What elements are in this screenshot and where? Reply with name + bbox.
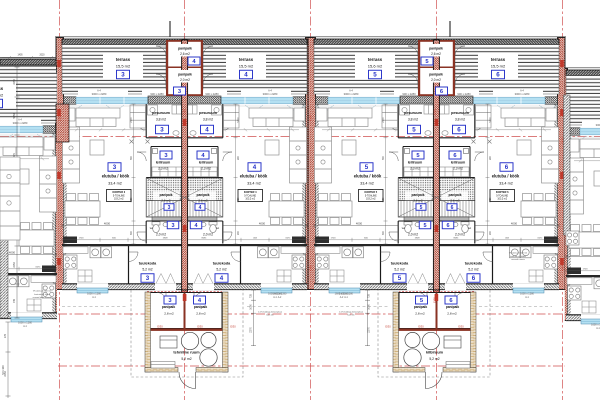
- svg-text:3,8 m2: 3,8 m2: [156, 118, 166, 122]
- svg-text:6: 6: [451, 205, 454, 211]
- svg-text:A-1: A-1: [596, 327, 600, 330]
- svg-text:1150: 1150: [131, 197, 133, 203]
- svg-text:2,3 m2: 2,3 m2: [201, 167, 211, 171]
- svg-text:1700: 1700: [79, 238, 85, 240]
- svg-text:3,8 m2: 3,8 m2: [408, 118, 418, 122]
- svg-text:5,2 m2: 5,2 m2: [429, 357, 439, 361]
- svg-text:VK abiruum 500 m2: VK abiruum 500 m2: [509, 252, 528, 255]
- svg-text:2770: 2770: [488, 117, 490, 123]
- svg-text:elutuba / köök: elutuba / köök: [492, 174, 520, 179]
- svg-text:KORTER 6: KORTER 6: [496, 191, 509, 194]
- svg-text:leiliruum: leiliruum: [451, 161, 466, 165]
- svg-text:3: 3: [168, 205, 171, 211]
- svg-text:1908: 1908: [201, 238, 207, 240]
- svg-text:EI30: EI30: [183, 297, 187, 303]
- svg-text:1908: 1908: [163, 238, 169, 240]
- svg-text:6: 6: [472, 275, 476, 282]
- svg-text:900 x 2280: 900 x 2280: [150, 92, 164, 96]
- svg-text:3000 x 2280: 3000 x 2280: [515, 92, 530, 96]
- svg-text:5,2 m2: 5,2 m2: [181, 357, 191, 361]
- svg-text:2250: 2250: [13, 262, 16, 268]
- svg-text:3: 3: [121, 72, 125, 79]
- svg-text:1600 x 1280: 1600 x 1280: [18, 322, 32, 325]
- svg-text:tuulekoda: tuulekoda: [139, 262, 157, 266]
- svg-text:EI30: EI30: [230, 325, 236, 329]
- svg-text:pesuruum: pesuruum: [152, 111, 171, 115]
- svg-text:elutuba / köök: elutuba / köök: [240, 174, 268, 179]
- svg-text:leiliruum: leiliruum: [199, 161, 214, 165]
- svg-text:EI30: EI30: [309, 265, 313, 271]
- svg-text:panipaik: panipaik: [429, 73, 443, 77]
- svg-text:2,3 m2: 2,3 m2: [410, 167, 420, 171]
- svg-text:900 x 2280: 900 x 2280: [205, 92, 219, 96]
- svg-text:2,0 m2: 2,0 m2: [408, 233, 418, 237]
- svg-text:4000: 4000: [104, 221, 111, 225]
- svg-text:5: 5: [398, 275, 402, 282]
- svg-text:pesuruum: pesuruum: [404, 111, 423, 115]
- svg-text:1150: 1150: [488, 197, 490, 203]
- svg-text:1600 x 1280: 1600 x 1280: [520, 293, 534, 296]
- svg-text:5-TOALINE: 5-TOALINE: [244, 194, 256, 197]
- svg-text:panipaik: panipaik: [449, 193, 462, 197]
- svg-text:4: 4: [253, 164, 257, 171]
- svg-text:EI30: EI30: [197, 325, 203, 329]
- svg-text:5050: 5050: [13, 113, 16, 119]
- svg-text:KORTER 3: KORTER 3: [112, 191, 125, 194]
- svg-text:panipaik: panipaik: [446, 305, 460, 309]
- svg-text:2270: 2270: [250, 327, 253, 333]
- svg-text:3000 x 2280: 3000 x 2280: [344, 92, 359, 96]
- svg-text:elutuba / köök: elutuba / köök: [102, 174, 130, 179]
- svg-text:panipaik: panipaik: [160, 193, 173, 197]
- svg-text:elutuba / köök: elutuba / köök: [354, 174, 382, 179]
- svg-text:900 x 2280: 900 x 2280: [457, 92, 471, 96]
- svg-text:asuvad tehn. ruumis: asuvad tehn. ruumis: [33, 296, 52, 299]
- svg-text:asuvad ruumis: asuvad ruumis: [511, 258, 525, 261]
- svg-text:2270: 2270: [368, 327, 371, 333]
- svg-text:15,5 m2: 15,5 m2: [239, 64, 254, 69]
- svg-text:terrass: terrass: [239, 57, 254, 62]
- svg-text:wc: wc: [468, 226, 472, 230]
- svg-text:33,4 m2: 33,4 m2: [108, 182, 122, 186]
- svg-text:5: 5: [420, 205, 423, 211]
- svg-text:panipaik: panipaik: [197, 193, 210, 197]
- svg-text:270: 270: [4, 333, 7, 338]
- svg-text:EI30: EI30: [309, 115, 313, 121]
- svg-text:4: 4: [244, 72, 248, 79]
- svg-text:5-TOALINE: 5-TOALINE: [496, 194, 508, 197]
- svg-text:1700: 1700: [35, 267, 41, 269]
- svg-text:3000 x 2280: 3000 x 2280: [263, 92, 278, 96]
- svg-text:6: 6: [457, 127, 461, 134]
- svg-text:terrass: terrass: [491, 57, 506, 62]
- svg-text:1600 x 1280: 1600 x 1280: [273, 293, 287, 296]
- svg-text:4000: 4000: [356, 221, 363, 225]
- svg-text:2,8 m2: 2,8 m2: [447, 312, 457, 316]
- svg-text:wc: wc: [216, 226, 220, 230]
- svg-text:3: 3: [113, 164, 117, 171]
- svg-text:2020: 2020: [39, 55, 45, 57]
- svg-text:3,8 m2: 3,8 m2: [203, 118, 213, 122]
- svg-text:panipaik: panipaik: [194, 305, 208, 309]
- svg-text:2,0 m2: 2,0 m2: [455, 233, 465, 237]
- svg-text:2,8 m2: 2,8 m2: [415, 312, 425, 316]
- svg-text:A-4: A-4: [18, 119, 22, 122]
- svg-text:3: 3: [171, 223, 174, 229]
- svg-text:33,4 m2: 33,4 m2: [360, 182, 374, 186]
- svg-text:5: 5: [373, 72, 377, 79]
- svg-text:33,4 m2: 33,4 m2: [499, 182, 513, 186]
- svg-text:panipaik: panipaik: [162, 305, 176, 309]
- svg-text:3000 x 2280: 3000 x 2280: [92, 92, 107, 96]
- svg-text:1700: 1700: [285, 238, 291, 240]
- svg-text:panipaik: panipaik: [429, 47, 443, 51]
- svg-text:tuulekoda: tuulekoda: [465, 262, 483, 266]
- svg-text:panipaik: panipaik: [412, 193, 425, 197]
- svg-text:2,3 m2: 2,3 m2: [453, 167, 463, 171]
- svg-text:2,0 m2: 2,0 m2: [431, 78, 441, 82]
- svg-text:103,2 m2: 103,2 m2: [366, 199, 376, 201]
- svg-text:KORTER 5: KORTER 5: [364, 191, 377, 194]
- svg-text:terrass: terrass: [116, 57, 131, 62]
- svg-text:korterite el. kilbid: korterite el. kilbid: [510, 255, 526, 258]
- svg-text:15,5 m2: 15,5 m2: [116, 64, 131, 69]
- svg-text:4: 4: [205, 127, 209, 134]
- svg-text:1150: 1150: [236, 197, 238, 203]
- svg-text:5-TOALINE: 5-TOALINE: [365, 194, 377, 197]
- svg-text:2,6 m2: 2,6 m2: [431, 52, 441, 56]
- svg-text:KORTER 4: KORTER 4: [244, 191, 257, 194]
- svg-text:1150: 1150: [383, 197, 385, 203]
- svg-text:A-4: A-4: [268, 90, 272, 93]
- svg-text:EI30: EI30: [58, 115, 62, 121]
- svg-text:2250: 2250: [13, 79, 16, 85]
- svg-text:EI30: EI30: [385, 325, 391, 329]
- svg-text:5,2 m2: 5,2 m2: [468, 268, 478, 272]
- svg-text:EI30: EI30: [433, 109, 437, 115]
- svg-text:M 1:100: M 1:100: [1, 365, 5, 375]
- svg-text:kuni 2m: kuni 2m: [347, 315, 355, 317]
- svg-text:103,2 m2: 103,2 m2: [245, 199, 255, 201]
- svg-text:5,2 m2: 5,2 m2: [216, 268, 226, 272]
- svg-text:A-4: A-4: [520, 90, 524, 93]
- svg-text:2770: 2770: [131, 117, 133, 123]
- svg-text:900 x 2280: 900 x 2280: [402, 92, 416, 96]
- svg-text:3,8 m2: 3,8 m2: [455, 118, 465, 122]
- svg-text:tehniline ruum: tehniline ruum: [173, 351, 200, 355]
- svg-text:panipaik: panipaik: [178, 47, 192, 51]
- svg-text:3: 3: [146, 275, 150, 282]
- svg-text:wc: wc: [402, 226, 406, 230]
- svg-text:6: 6: [505, 164, 509, 171]
- svg-text:EI30: EI30: [561, 265, 565, 271]
- svg-text:33,4 m2: 33,4 m2: [247, 182, 261, 186]
- svg-text:4: 4: [199, 205, 202, 211]
- svg-text:5: 5: [423, 223, 426, 229]
- svg-text:terrass: terrass: [368, 57, 383, 62]
- svg-text:EI30: EI30: [433, 297, 437, 303]
- svg-text:leiliruum: leiliruum: [408, 161, 423, 165]
- svg-text:panipaik: panipaik: [178, 73, 192, 77]
- svg-text:6: 6: [496, 72, 500, 79]
- svg-text:1600 x 1280: 1600 x 1280: [87, 293, 101, 296]
- svg-text:2,8 m2: 2,8 m2: [164, 312, 174, 316]
- svg-text:kilbiruum: kilbiruum: [426, 351, 444, 355]
- svg-text:3000 x 2280: 3000 x 2280: [596, 123, 600, 127]
- svg-text:pesuruum: pesuruum: [451, 111, 470, 115]
- svg-text:kuni 2m: kuni 2m: [266, 315, 274, 317]
- svg-text:6: 6: [446, 223, 449, 229]
- svg-text:2,6 m2: 2,6 m2: [450, 199, 460, 203]
- svg-text:2,6 m2: 2,6 m2: [198, 199, 208, 203]
- svg-text:15,6 m2: 15,6 m2: [368, 64, 383, 69]
- svg-text:EI30: EI30: [58, 265, 62, 271]
- svg-text:4000: 4000: [9, 250, 16, 254]
- svg-text:735: 735: [13, 298, 16, 303]
- svg-text:3: 3: [160, 127, 164, 134]
- svg-text:panipaik: panipaik: [414, 305, 428, 309]
- svg-text:pesuruum: pesuruum: [199, 111, 218, 115]
- svg-text:2,6 m2: 2,6 m2: [413, 199, 423, 203]
- svg-text:2770: 2770: [236, 117, 238, 123]
- svg-text:2,6 m2: 2,6 m2: [180, 52, 190, 56]
- svg-text:2770: 2770: [383, 117, 385, 123]
- svg-text:5,2 m2: 5,2 m2: [142, 268, 152, 272]
- svg-text:1908: 1908: [415, 238, 421, 240]
- svg-text:leiliruum: leiliruum: [156, 161, 171, 165]
- svg-text:1908: 1908: [453, 238, 459, 240]
- svg-text:1700: 1700: [537, 238, 543, 240]
- svg-text:2,0 m2: 2,0 m2: [203, 233, 213, 237]
- svg-text:wc: wc: [150, 226, 154, 230]
- svg-text:1,5% kaldega betoonplaat: 1,5% kaldega betoonplaat: [258, 310, 282, 313]
- svg-text:2,6 m2: 2,6 m2: [161, 199, 171, 203]
- svg-text:5: 5: [365, 164, 369, 171]
- svg-text:1600 x 1280: 1600 x 1280: [335, 293, 349, 296]
- svg-text:EI30: EI30: [183, 109, 187, 115]
- svg-text:735: 735: [250, 293, 253, 298]
- svg-text:4: 4: [220, 275, 224, 282]
- svg-text:A-4: A-4: [349, 90, 353, 93]
- svg-text:103,2 m2: 103,2 m2: [497, 199, 507, 201]
- svg-text:5,2 m2: 5,2 m2: [394, 268, 404, 272]
- svg-text:EI30: EI30: [458, 325, 464, 329]
- svg-text:15,5 m2: 15,5 m2: [491, 64, 506, 69]
- svg-text:5-TOALINE: 5-TOALINE: [113, 194, 125, 197]
- svg-text:EI30: EI30: [157, 325, 163, 329]
- svg-text:103,2 m2: 103,2 m2: [114, 199, 124, 201]
- svg-text:2,0 m2: 2,0 m2: [156, 233, 166, 237]
- svg-text:735: 735: [368, 293, 371, 298]
- svg-text:5: 5: [412, 127, 416, 134]
- svg-text:1,5% kaldega betoonplaat: 1,5% kaldega betoonplaat: [339, 310, 363, 313]
- svg-text:EI30: EI30: [418, 325, 424, 329]
- svg-text:tuulekoda: tuulekoda: [213, 262, 231, 266]
- svg-text:4000: 4000: [511, 221, 518, 225]
- svg-text:1700: 1700: [331, 238, 337, 240]
- svg-text:2,8 m2: 2,8 m2: [196, 312, 206, 316]
- svg-text:1700: 1700: [583, 269, 589, 271]
- svg-text:korterite el. kilbid: korterite el. kilbid: [34, 293, 50, 296]
- svg-text:2,3 m2: 2,3 m2: [158, 167, 168, 171]
- svg-text:3000 x 2280: 3000 x 2280: [13, 121, 28, 125]
- svg-text:4000: 4000: [259, 221, 266, 225]
- svg-text:1600 x 1280: 1600 x 1280: [591, 324, 600, 327]
- svg-text:2,0 m2: 2,0 m2: [180, 78, 190, 82]
- svg-text:VK abiruum 500 m2: VK abiruum 500 m2: [33, 290, 52, 293]
- svg-text:tuulekoda: tuulekoda: [391, 262, 409, 266]
- svg-text:A-4: A-4: [97, 90, 101, 93]
- svg-text:1405: 1405: [17, 55, 23, 57]
